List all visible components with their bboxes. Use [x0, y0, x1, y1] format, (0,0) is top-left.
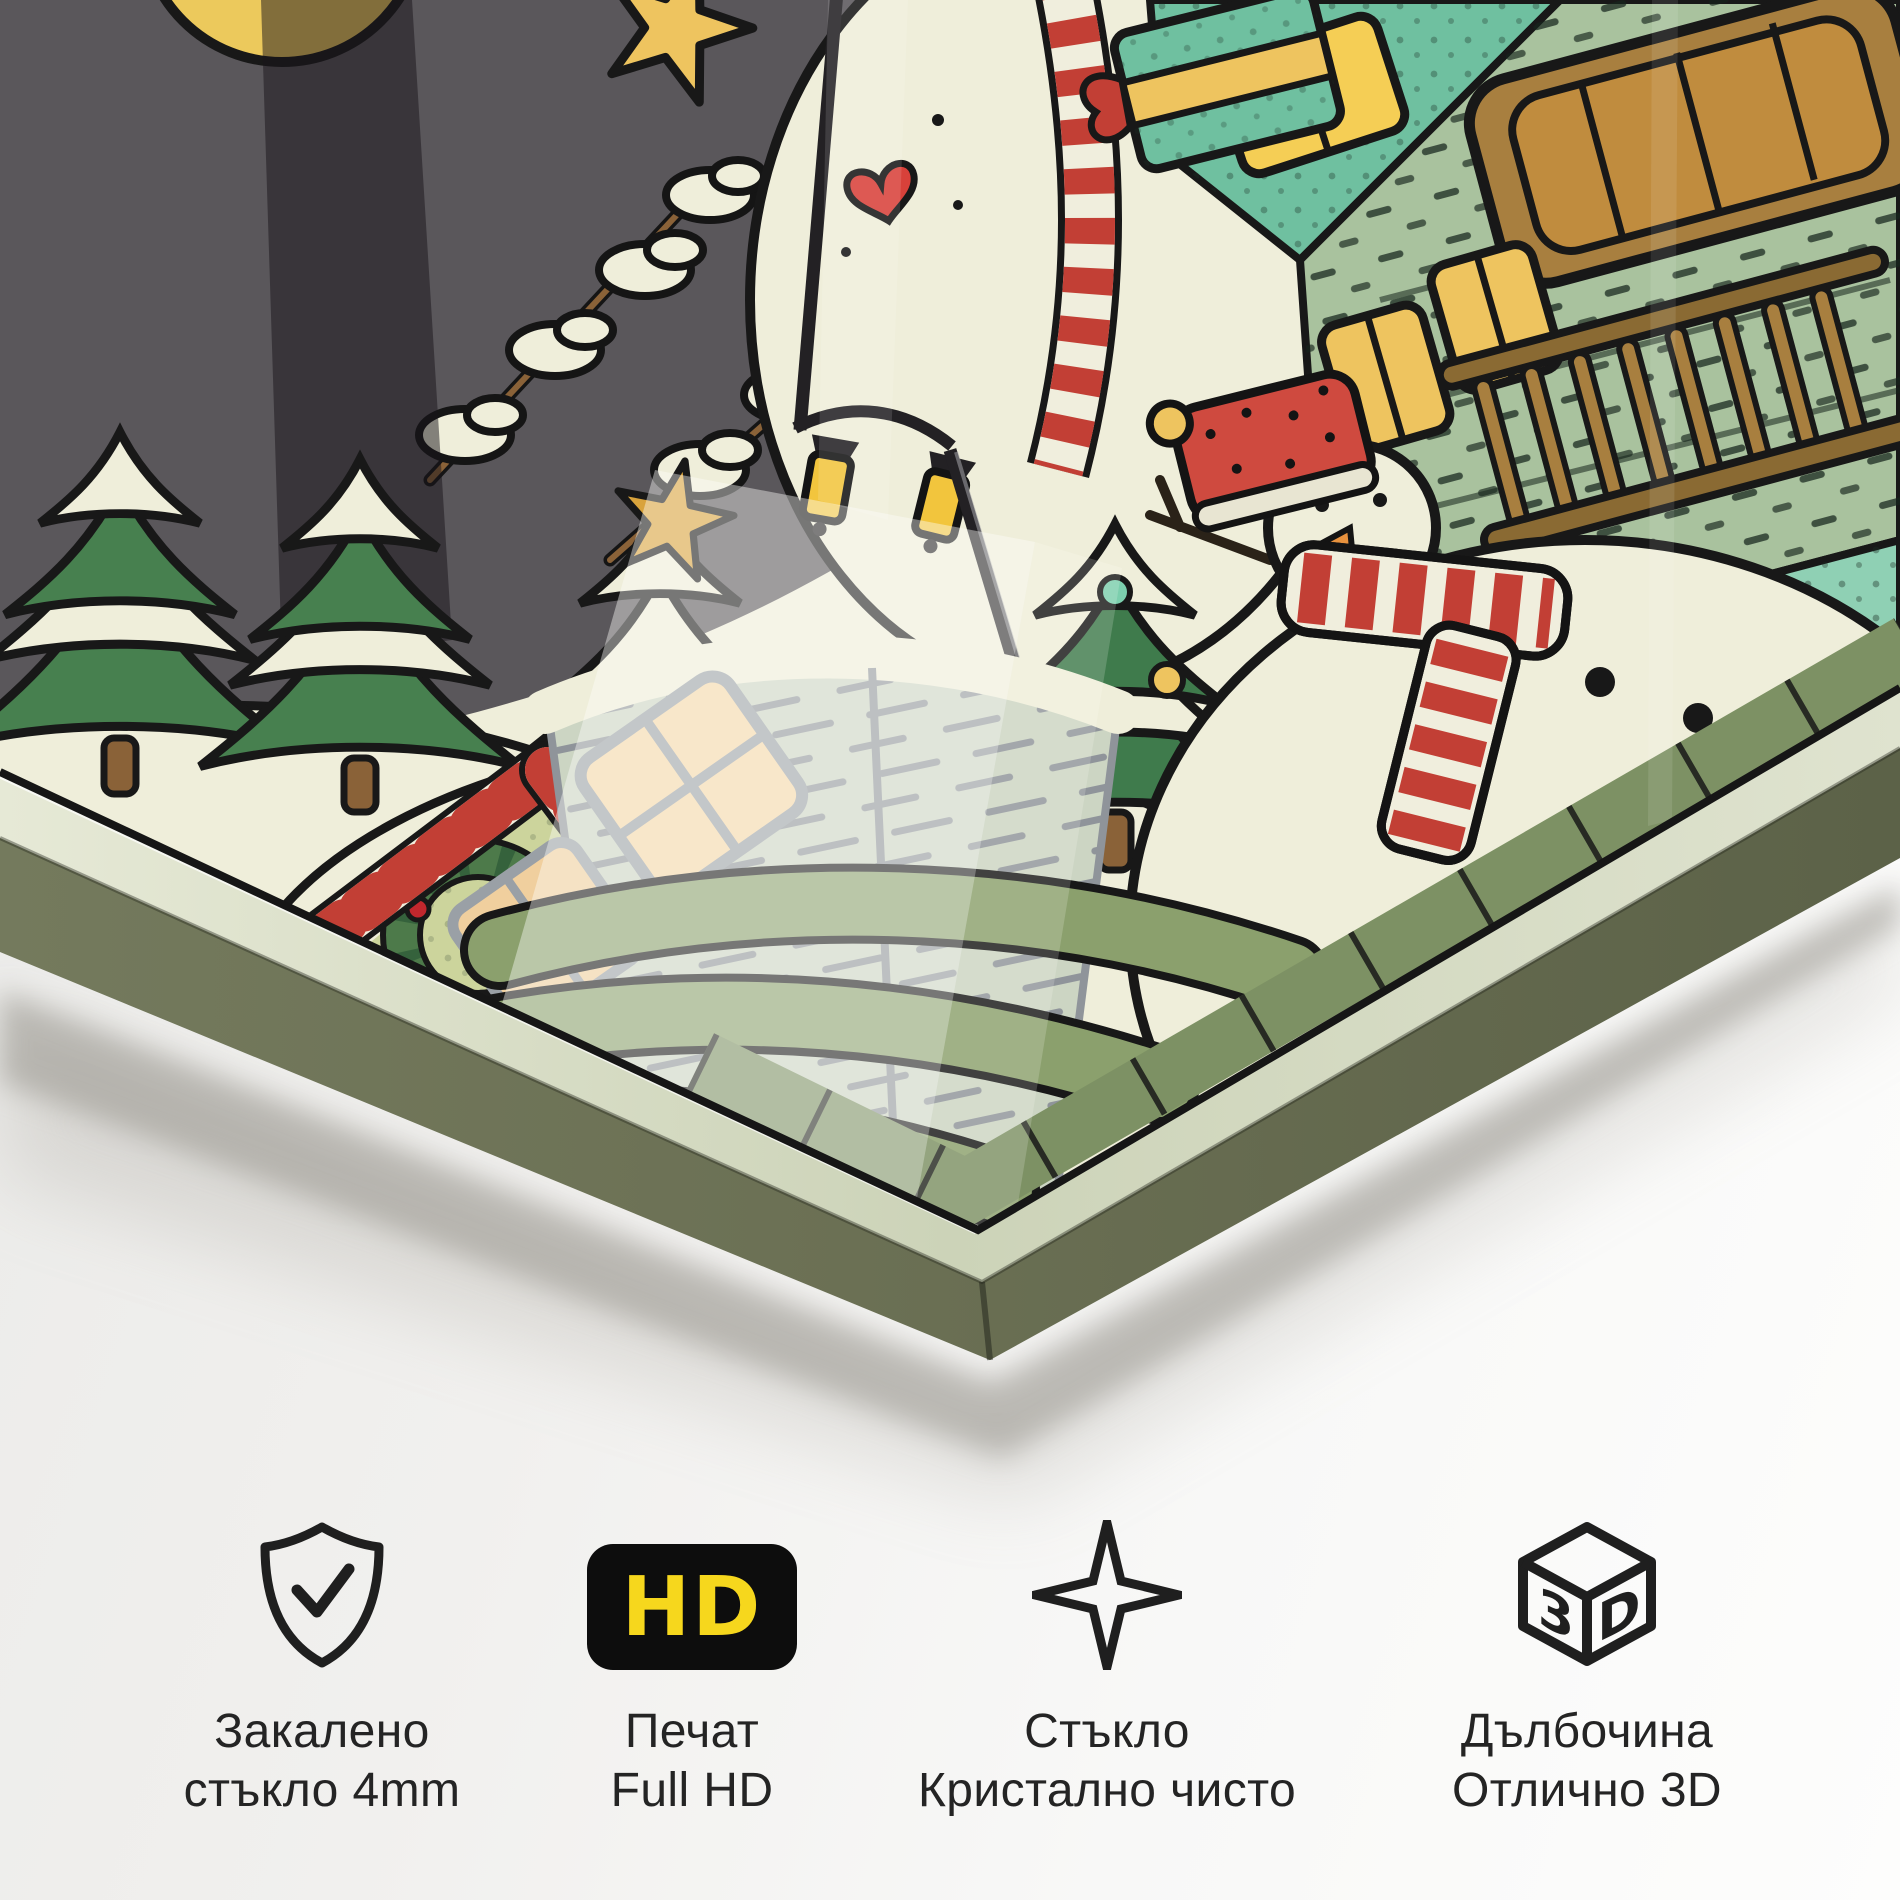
product-showcase: Закалено стъкло 4mm HD Печат Full HD Стъ… — [0, 0, 1900, 1900]
candy-stripe-band — [1058, 0, 1090, 470]
glass-print-panel — [0, 0, 1900, 1900]
